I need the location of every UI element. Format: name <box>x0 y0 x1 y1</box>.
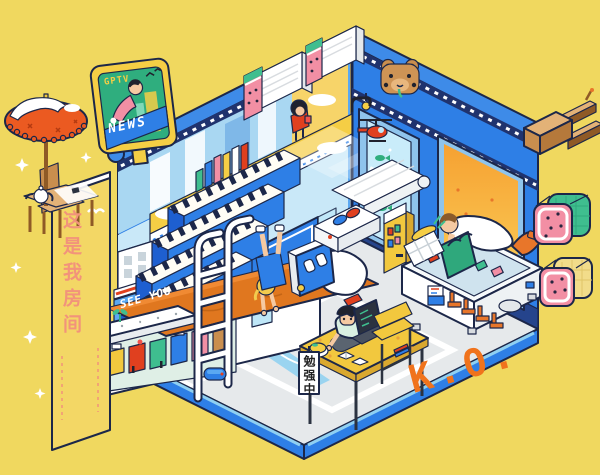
watermelon-towel <box>306 38 322 86</box>
watermelon-toast-green <box>534 194 590 244</box>
small-sign <box>428 286 443 296</box>
studying-sign-text: 勉强中 <box>301 355 318 397</box>
scene-art <box>0 0 600 475</box>
parasol <box>5 94 87 143</box>
robot-vacuum <box>204 368 226 380</box>
watermelon-toast-yellow <box>540 258 592 306</box>
pixel-room-scene: GPTV NEWS 这是我房间 SEE YOU 40°L 勉强中 K.O. <box>0 0 600 475</box>
bear-controller-icon <box>381 60 419 98</box>
wall-banner-text: 这是我房间 <box>58 210 85 340</box>
watermelon-towel <box>244 67 262 120</box>
